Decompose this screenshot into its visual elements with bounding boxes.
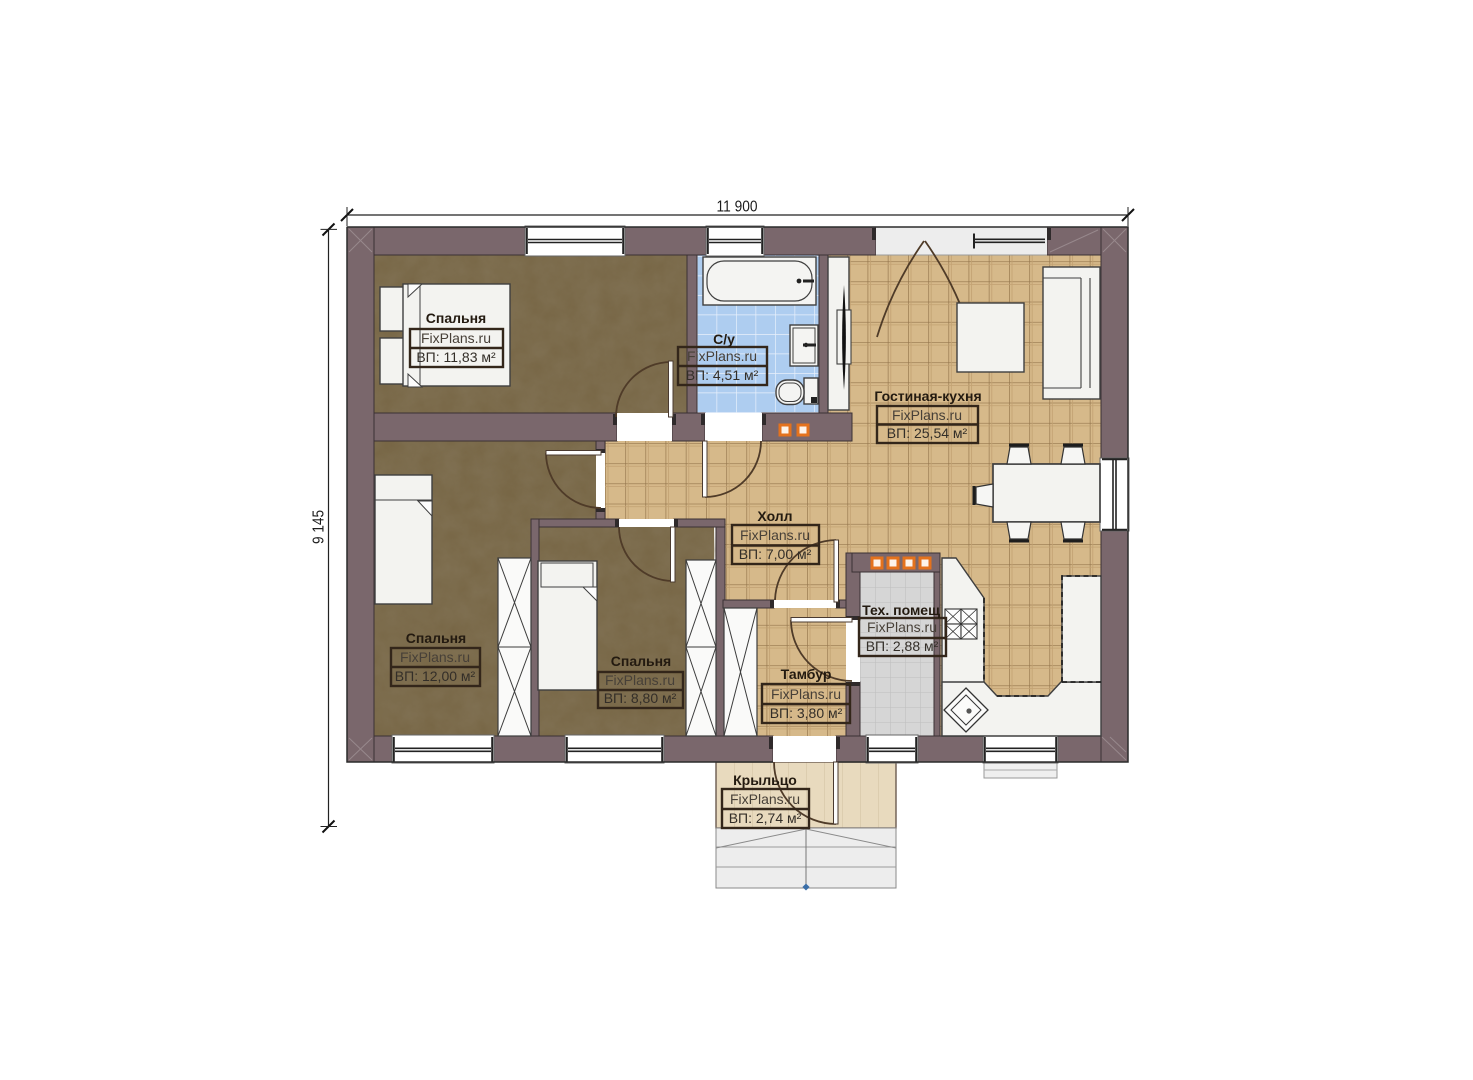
svg-text:FixPlans.ru: FixPlans.ru (867, 619, 937, 635)
svg-text:Спальня: Спальня (426, 310, 486, 326)
svg-text:ВП: 3,80 м²: ВП: 3,80 м² (770, 705, 843, 721)
svg-text:Спальня: Спальня (611, 653, 671, 669)
svg-text:С/у: С/у (713, 331, 735, 347)
svg-text:FixPlans.ru: FixPlans.ru (400, 649, 470, 665)
svg-text:ВП: 11,83 м²: ВП: 11,83 м² (416, 349, 496, 365)
svg-text:Крыльцо: Крыльцо (733, 772, 797, 788)
svg-text:FixPlans.ru: FixPlans.ru (892, 407, 962, 423)
svg-text:FixPlans.ru: FixPlans.ru (730, 791, 800, 807)
svg-text:FixPlans.ru: FixPlans.ru (605, 672, 675, 688)
svg-text:FixPlans.ru: FixPlans.ru (740, 527, 810, 543)
svg-text:FixPlans.ru: FixPlans.ru (771, 686, 841, 702)
svg-text:ВП: 2,74 м²: ВП: 2,74 м² (729, 810, 802, 826)
svg-text:Спальня: Спальня (406, 630, 466, 646)
svg-text:ВП: 8,80 м²: ВП: 8,80 м² (604, 690, 677, 706)
svg-text:Тамбур: Тамбур (781, 666, 832, 682)
svg-text:FixPlans.ru: FixPlans.ru (687, 348, 757, 364)
svg-text:Гостиная-кухня: Гостиная-кухня (874, 388, 981, 404)
svg-text:ВП: 4,51 м²: ВП: 4,51 м² (686, 367, 759, 383)
svg-text:ВП: 2,88 м²: ВП: 2,88 м² (866, 638, 939, 654)
svg-text:Холл: Холл (757, 508, 792, 524)
svg-text:11 900: 11 900 (717, 199, 758, 216)
svg-text:9 145: 9 145 (311, 510, 328, 544)
svg-text:FixPlans.ru: FixPlans.ru (421, 330, 491, 346)
svg-text:Тех. помещ: Тех. помещ (862, 602, 940, 618)
svg-text:ВП: 12,00 м²: ВП: 12,00 м² (395, 668, 476, 684)
svg-text:ВП: 25,54 м²: ВП: 25,54 м² (887, 425, 968, 441)
svg-text:ВП: 7,00 м²: ВП: 7,00 м² (739, 546, 812, 562)
